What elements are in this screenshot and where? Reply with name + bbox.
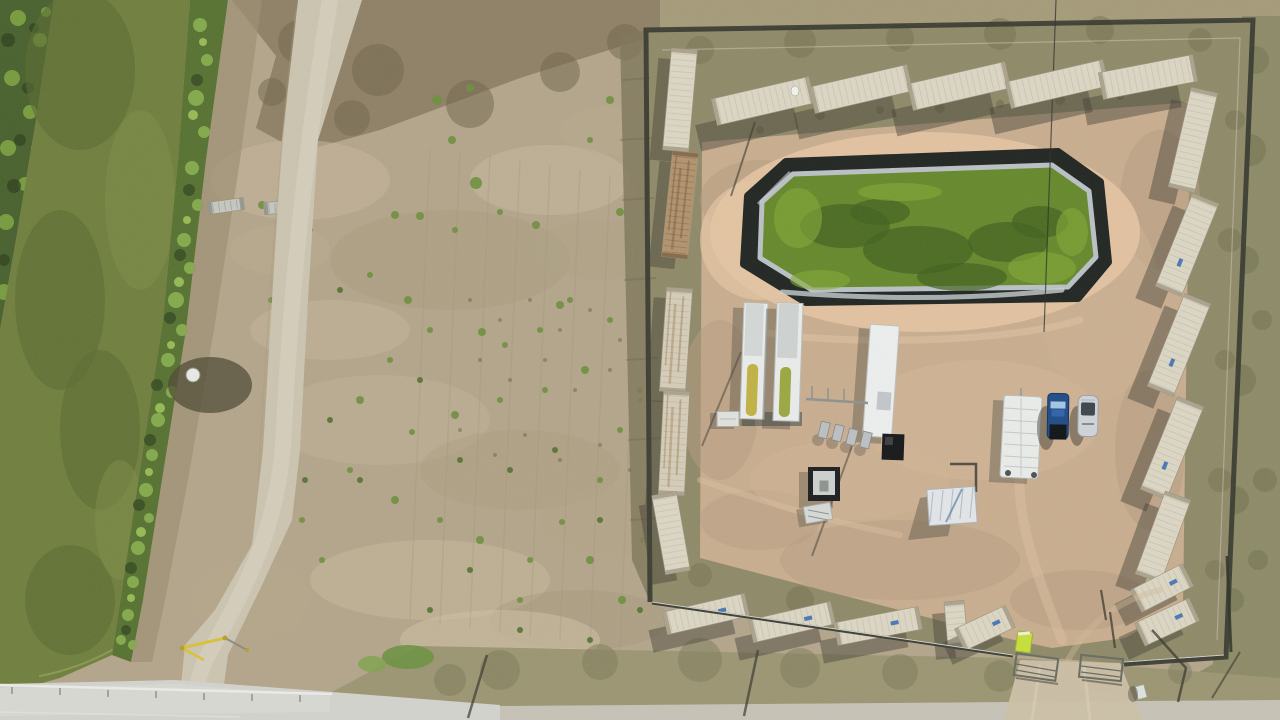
film-grain-overlay: [0, 0, 1280, 720]
aerial-photograph: [0, 0, 1280, 720]
aerial-photo-frame: [0, 0, 1280, 720]
